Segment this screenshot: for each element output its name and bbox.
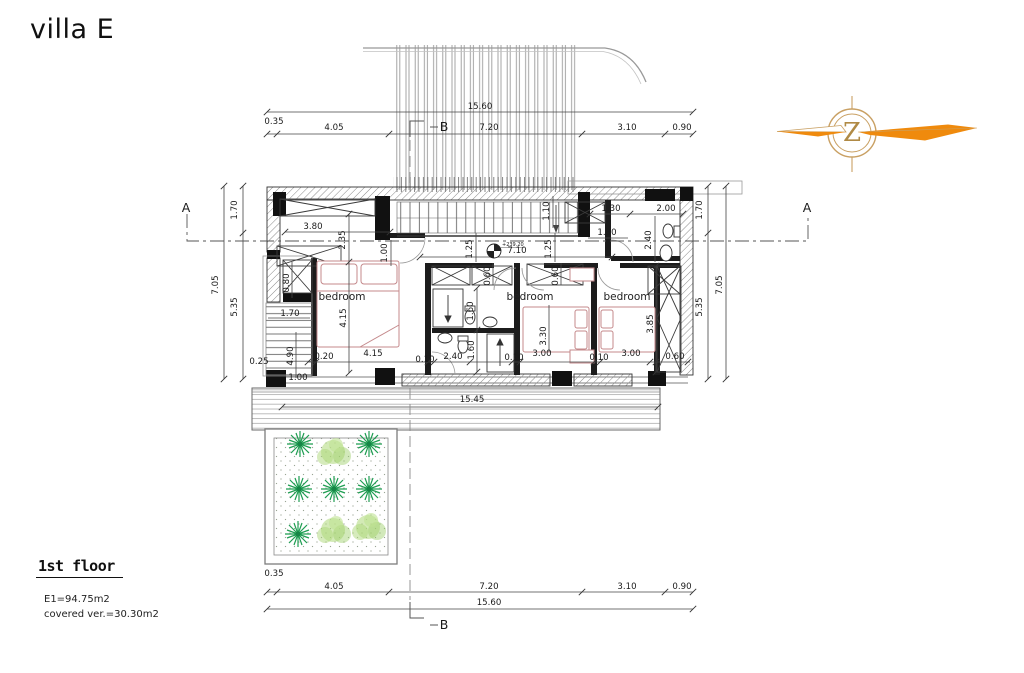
dimension-label: 0.90 (672, 123, 691, 133)
dimension-label: 4.90 (286, 346, 296, 365)
section-label: B (440, 617, 449, 632)
dimension-label: 3.00 (532, 349, 551, 359)
dimension-label: 1.70 (280, 309, 299, 319)
dimension-label: 3.00 (621, 349, 640, 359)
dimension-label: 0.60 (551, 266, 561, 285)
dimension-label: 3.85 (646, 314, 656, 333)
dimension-label: 0.60 (483, 266, 493, 285)
dimension-label: 1.10 (542, 201, 552, 220)
dimension-label: 3.10 (617, 123, 636, 133)
section-label: B (440, 119, 449, 134)
room-label: bedroom (604, 291, 651, 303)
compass-west-blade (777, 126, 846, 133)
level-value: +239.20 (502, 242, 524, 248)
section-label: A (182, 200, 191, 215)
dimension-label: 15.60 (477, 598, 502, 608)
dimension-label: 0.10 (589, 353, 608, 363)
dimension-label: 3.30 (539, 326, 549, 345)
dimension-label: 7.20 (479, 582, 498, 592)
floor-area-line1: E1=94.75m2 (44, 592, 159, 607)
dimension-label: 5.35 (695, 297, 705, 316)
dimension-label: 1.70 (230, 200, 240, 219)
dimension-label: 0.20 (314, 352, 333, 362)
dimension-label: 1.70 (695, 200, 705, 219)
dimension-label: 3.80 (303, 222, 322, 232)
veranda-deck (252, 388, 660, 430)
room-label: bedroom (507, 291, 554, 303)
dimension-label: 5.35 (230, 297, 240, 316)
drawing-sheet: villa E (0, 0, 1024, 673)
dimension-label: 1.30 (597, 228, 616, 238)
dimension-label: 4.05 (324, 582, 343, 592)
floor-note: 1st floor E1=94.75m2 covered ver.=30.30m… (36, 556, 159, 622)
dimension-label: 0.10 (504, 353, 523, 363)
dimension-label: 0.60 (665, 352, 684, 362)
dimension-label: 0.10 (415, 355, 434, 365)
section-label: A (803, 200, 812, 215)
dimension-label: 0.35 (264, 117, 283, 127)
dimension-label: 1.00 (288, 373, 307, 383)
dimension-label: 0.90 (672, 582, 691, 592)
logo-letter: Z (843, 118, 861, 148)
dimension-label: 7.05 (715, 275, 725, 294)
dimension-label: 4.15 (339, 308, 349, 327)
dimension-label: 1.25 (544, 239, 554, 258)
dimension-label: 1.60 (466, 301, 476, 320)
dimension-label: 4.05 (324, 123, 343, 133)
dimension-label: 3.10 (617, 582, 636, 592)
level-label: +239.20 (502, 242, 524, 248)
dimension-label: 2.40 (644, 230, 654, 249)
compass-logo: Z (777, 96, 977, 172)
compass-west-blade-fill (777, 132, 846, 137)
dimension-label: 0.80 (282, 273, 292, 292)
dimension-label: 7.05 (211, 275, 221, 294)
floor-label: 1st floor (36, 557, 123, 578)
dimension-label: 1.30 (601, 204, 620, 214)
dimension-label: 2.00 (656, 204, 675, 214)
dimension-label: 0.25 (249, 357, 268, 367)
room-label: bedroom (319, 291, 366, 303)
dimension-label: 1.25 (465, 239, 475, 258)
garden-planter (265, 429, 397, 564)
dimension-label: 1.00 (380, 243, 390, 262)
floor-area-line2: covered ver.=30.30m2 (44, 607, 159, 622)
dimension-label: 15.60 (468, 102, 493, 112)
dimension-label: 2.40 (443, 352, 462, 362)
dimension-label: 0.35 (264, 569, 283, 579)
dimension-label: 7.20 (479, 123, 498, 133)
pergola-roof (363, 45, 742, 194)
dimension-label: 1.60 (467, 340, 477, 359)
dimension-label: 2.35 (338, 230, 348, 249)
dimension-label: 15.45 (460, 395, 485, 405)
dimension-label: 4.15 (363, 349, 382, 359)
